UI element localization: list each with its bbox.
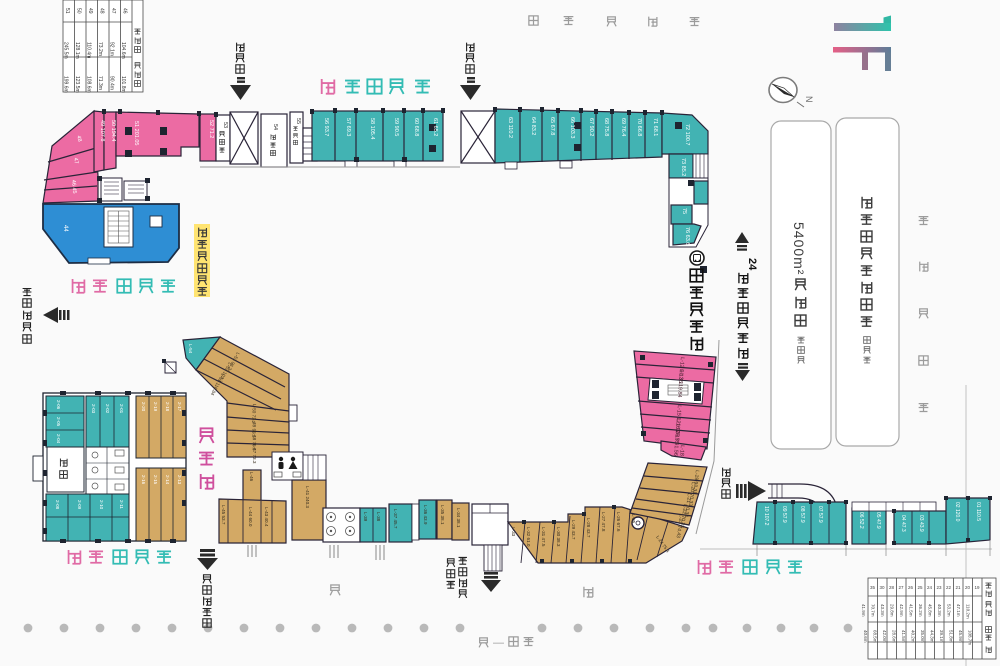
svg-text:21: 21 — [956, 585, 962, 590]
svg-text:71 68.1: 71 68.1 — [652, 118, 658, 136]
svg-text:66 103.3: 66 103.3 — [569, 117, 575, 138]
svg-text:90.4m: 90.4m — [109, 76, 115, 90]
svg-text:52 71.2: 52 71.2 — [208, 120, 214, 138]
svg-text:65 67.8: 65 67.8 — [549, 117, 555, 135]
svg-text:2-02: 2-02 — [105, 404, 110, 414]
svg-text:72 100.7: 72 100.7 — [684, 124, 690, 145]
svg-text:L-35 38.1: L-35 38.1 — [440, 505, 445, 525]
svg-text:70.7m: 70.7m — [871, 604, 876, 617]
svg-text:22: 22 — [946, 585, 952, 590]
svg-text:101.8m: 101.8m — [120, 76, 126, 93]
svg-text:48: 48 — [99, 8, 105, 14]
svg-text:49 107.8: 49 107.8 — [99, 120, 105, 141]
svg-text:56 93.7: 56 93.7 — [323, 118, 329, 136]
svg-text:L-44 60.0: L-44 60.0 — [248, 507, 253, 527]
svg-text:L-37 45.7: L-37 45.7 — [393, 509, 398, 529]
svg-text:L-18: L-18 — [678, 445, 685, 456]
svg-text:2-19: 2-19 — [153, 402, 158, 412]
svg-text:54: 54 — [272, 124, 278, 130]
svg-text:L-29 43.7: L-29 43.7 — [571, 520, 576, 540]
svg-text:2-01: 2-01 — [119, 404, 124, 414]
svg-text:46 45: 46 45 — [70, 180, 77, 194]
svg-text:23: 23 — [937, 585, 943, 590]
svg-text:05 47.9: 05 47.9 — [875, 512, 881, 529]
svg-text:44: 44 — [62, 225, 68, 232]
svg-text:2-18: 2-18 — [165, 402, 170, 412]
svg-text:L-26 67.6: L-26 67.6 — [616, 512, 621, 532]
svg-text:40.3m: 40.3m — [937, 604, 942, 617]
svg-text:03 43.9: 03 43.9 — [918, 515, 924, 532]
svg-text:76 63.6: 76 63.6 — [684, 227, 690, 245]
svg-text:L-25: L-25 — [631, 514, 636, 524]
svg-text:128.1m: 128.1m — [74, 42, 80, 59]
svg-text:46: 46 — [122, 8, 128, 14]
svg-text:2-10: 2-10 — [99, 500, 104, 510]
svg-text:71.3m: 71.3m — [97, 76, 103, 90]
svg-text:44.3m: 44.3m — [930, 630, 935, 643]
svg-text:45.9m: 45.9m — [958, 630, 963, 643]
svg-text:L-38: L-38 — [376, 512, 381, 522]
svg-text:73.2m: 73.2m — [97, 42, 103, 56]
svg-text:47: 47 — [110, 8, 116, 14]
svg-text:245.5m: 245.5m — [63, 42, 69, 59]
svg-text:2-06: 2-06 — [56, 400, 61, 410]
svg-text:2-04: 2-04 — [56, 434, 61, 444]
svg-text:2-16: 2-16 — [141, 475, 146, 485]
svg-text:27: 27 — [899, 585, 905, 590]
svg-text:L-47 73.3: L-47 73.3 — [252, 444, 257, 464]
svg-text:92.1m: 92.1m — [109, 42, 115, 56]
svg-text:2-17: 2-17 — [177, 402, 182, 412]
svg-text:2-14: 2-14 — [165, 475, 170, 485]
svg-text:104.6m: 104.6m — [120, 42, 126, 59]
svg-text:51 201.05: 51 201.05 — [133, 121, 139, 145]
svg-text:20: 20 — [965, 585, 971, 590]
svg-text:64 83.2: 64 83.2 — [530, 117, 536, 135]
svg-text:01 110.5: 01 110.5 — [975, 502, 981, 521]
svg-text:L-30 38.3: L-30 38.3 — [556, 527, 561, 547]
svg-text:61 65.2: 61 65.2 — [432, 118, 438, 136]
svg-text:68.5m: 68.5m — [873, 630, 878, 643]
svg-text:75: 75 — [681, 208, 687, 214]
svg-text:28: 28 — [889, 585, 895, 590]
svg-text:02 120.0: 02 120.0 — [954, 502, 960, 522]
svg-text:2-05: 2-05 — [56, 417, 61, 427]
svg-text:2-09: 2-09 — [77, 500, 82, 510]
svg-text:43.3m: 43.3m — [880, 604, 885, 617]
svg-text:47.1m: 47.1m — [956, 604, 961, 617]
svg-text:2-13: 2-13 — [177, 475, 182, 485]
svg-text:L-46: L-46 — [249, 472, 254, 482]
svg-text:L-27 47.8: L-27 47.8 — [601, 512, 606, 532]
svg-text:41.9m: 41.9m — [861, 604, 866, 617]
svg-text:N: N — [804, 96, 814, 103]
svg-text:L-41 240.3: L-41 240.3 — [305, 486, 310, 508]
svg-text:24: 24 — [927, 585, 933, 590]
svg-text:5400m²: 5400m² — [791, 222, 807, 275]
svg-text:57 69.3: 57 69.3 — [345, 118, 351, 136]
svg-text:39.1m: 39.1m — [939, 630, 944, 643]
svg-text:42.0m: 42.0m — [882, 630, 887, 643]
svg-text:42.9m: 42.9m — [899, 604, 904, 617]
svg-text:24: 24 — [746, 258, 758, 271]
svg-text:36.2m: 36.2m — [918, 604, 923, 617]
svg-text:50: 50 — [76, 8, 82, 14]
svg-text:10 107.2: 10 107.2 — [763, 506, 769, 526]
svg-text:68 75.8: 68 75.8 — [603, 118, 609, 136]
svg-text:53.2m: 53.2m — [947, 604, 952, 617]
svg-text:L-31 47.5: L-31 47.5 — [541, 527, 546, 547]
svg-text:40.2m: 40.2m — [911, 630, 916, 643]
svg-text:2-03: 2-03 — [91, 404, 96, 414]
svg-text:—: — — [493, 637, 504, 649]
svg-text:50 194.4: 50 194.4 — [110, 120, 116, 141]
svg-text:08 57.9: 08 57.9 — [799, 506, 805, 523]
svg-text:L-28 43.7: L-28 43.7 — [586, 518, 591, 538]
svg-text:51.8m: 51.8m — [949, 630, 954, 643]
svg-text:19: 19 — [975, 585, 981, 590]
svg-text:55: 55 — [295, 118, 301, 124]
svg-text:06 52.2: 06 52.2 — [858, 512, 864, 529]
svg-text:59 90.5: 59 90.5 — [393, 118, 399, 136]
svg-text:L-36 43.9: L-36 43.9 — [423, 505, 428, 525]
svg-text:L-34 38.1: L-34 38.1 — [456, 508, 461, 528]
svg-text:L-45 53.7: L-45 53.7 — [221, 505, 226, 525]
svg-text:2-08: 2-08 — [55, 500, 60, 510]
svg-text:40.6m: 40.6m — [863, 630, 868, 643]
svg-text:110.4m: 110.4m — [86, 42, 92, 58]
svg-text:108.6m: 108.6m — [86, 76, 92, 93]
svg-text:45.8m: 45.8m — [928, 604, 933, 617]
svg-text:07 57.9: 07 57.9 — [817, 506, 823, 523]
svg-text:30: 30 — [880, 585, 886, 590]
svg-text:110.2m: 110.2m — [966, 604, 971, 619]
svg-text:70 66.8: 70 66.8 — [636, 118, 642, 136]
svg-text:67 90.2: 67 90.2 — [588, 118, 594, 136]
svg-text:60 68.8: 60 68.8 — [413, 118, 419, 136]
svg-text:26: 26 — [908, 585, 914, 590]
svg-text:29.8m: 29.8m — [890, 604, 895, 617]
svg-text:L-39: L-39 — [363, 512, 368, 522]
svg-text:58 105.4: 58 105.4 — [369, 118, 375, 139]
svg-text:69 76.4: 69 76.4 — [620, 118, 626, 136]
svg-text:35: 35 — [870, 585, 876, 590]
svg-text:2-11: 2-11 — [119, 500, 124, 509]
svg-text:28.6m: 28.6m — [892, 630, 897, 643]
svg-text:L-54: L-54 — [188, 344, 193, 354]
svg-text:73 85.2: 73 85.2 — [680, 158, 686, 176]
svg-text:35.0m: 35.0m — [920, 630, 925, 643]
svg-text:L-32 61.0: L-32 61.0 — [526, 527, 531, 547]
svg-text:41.5m: 41.5m — [909, 604, 914, 617]
svg-text:49: 49 — [87, 8, 93, 14]
svg-text:47: 47 — [72, 157, 79, 164]
svg-text:09 57.9: 09 57.9 — [781, 506, 787, 523]
svg-text:123.5m: 123.5m — [74, 76, 80, 93]
svg-text:51: 51 — [64, 8, 70, 14]
svg-text:63 110.2: 63 110.2 — [507, 117, 513, 138]
svg-text:108.7m: 108.7m — [968, 630, 973, 645]
svg-text:41.5m: 41.5m — [901, 630, 906, 643]
svg-text:L-43 40.4: L-43 40.4 — [264, 507, 269, 527]
svg-text:2-15: 2-15 — [153, 475, 158, 485]
svg-text:53: 53 — [222, 122, 228, 128]
svg-text:L-33: L-33 — [511, 527, 516, 537]
svg-text:25: 25 — [918, 585, 924, 590]
svg-text:2-20: 2-20 — [141, 402, 146, 412]
svg-text:199.6m: 199.6m — [63, 76, 69, 93]
svg-text:04 47.3: 04 47.3 — [900, 515, 906, 532]
